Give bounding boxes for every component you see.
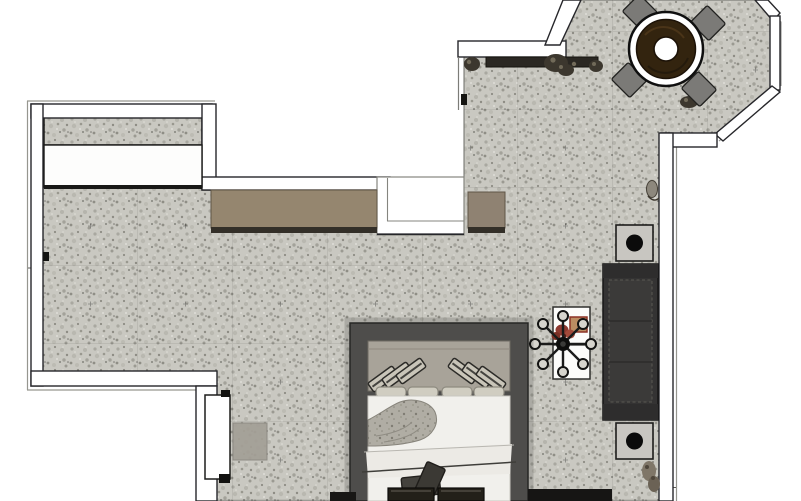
wall-top-left xyxy=(31,104,212,118)
wall-right xyxy=(659,133,673,501)
plant-icon xyxy=(464,57,480,71)
floor-plan-svg xyxy=(0,0,801,501)
shelf-board xyxy=(486,57,598,67)
door-leaf xyxy=(205,395,230,479)
floor-plan-canvas xyxy=(0,0,801,501)
counter-right-slab xyxy=(468,192,505,228)
wall-left xyxy=(31,104,43,386)
sofa-seat xyxy=(609,280,652,402)
floor-strip-top-left xyxy=(44,116,202,145)
bed-set xyxy=(347,320,531,501)
counter-right-shadow xyxy=(468,227,505,233)
wall-mid-horizontal xyxy=(202,177,390,190)
wall-bottom-left xyxy=(31,371,217,386)
dining-table-center xyxy=(654,37,678,61)
lamp-icon xyxy=(626,433,643,450)
wardrobe xyxy=(44,145,202,189)
side-table-top xyxy=(616,225,653,261)
floor-mat xyxy=(233,423,267,460)
wardrobe-base-line xyxy=(44,185,202,189)
sofa-arm-bottom xyxy=(603,404,658,420)
bay-wall-right xyxy=(770,16,780,90)
counter-left-shadow xyxy=(211,227,377,233)
bottom-wall-strip xyxy=(330,492,356,501)
wall-nub-top xyxy=(461,94,467,105)
door-hinge xyxy=(219,474,230,483)
bench-pad xyxy=(438,488,484,501)
bottom-wall-strip xyxy=(528,489,612,501)
counter-left-slab xyxy=(211,190,377,228)
window-niche xyxy=(377,177,464,235)
door-hinge xyxy=(221,390,230,397)
wall-nub-left xyxy=(43,252,49,261)
side-table-bottom xyxy=(616,423,653,459)
lamp-icon xyxy=(626,235,643,252)
bench-pad xyxy=(388,488,434,501)
swivel-chair xyxy=(530,311,596,377)
wardrobe-body xyxy=(44,145,202,187)
sofa-arm-top xyxy=(603,264,658,278)
plant-icon xyxy=(589,60,603,72)
